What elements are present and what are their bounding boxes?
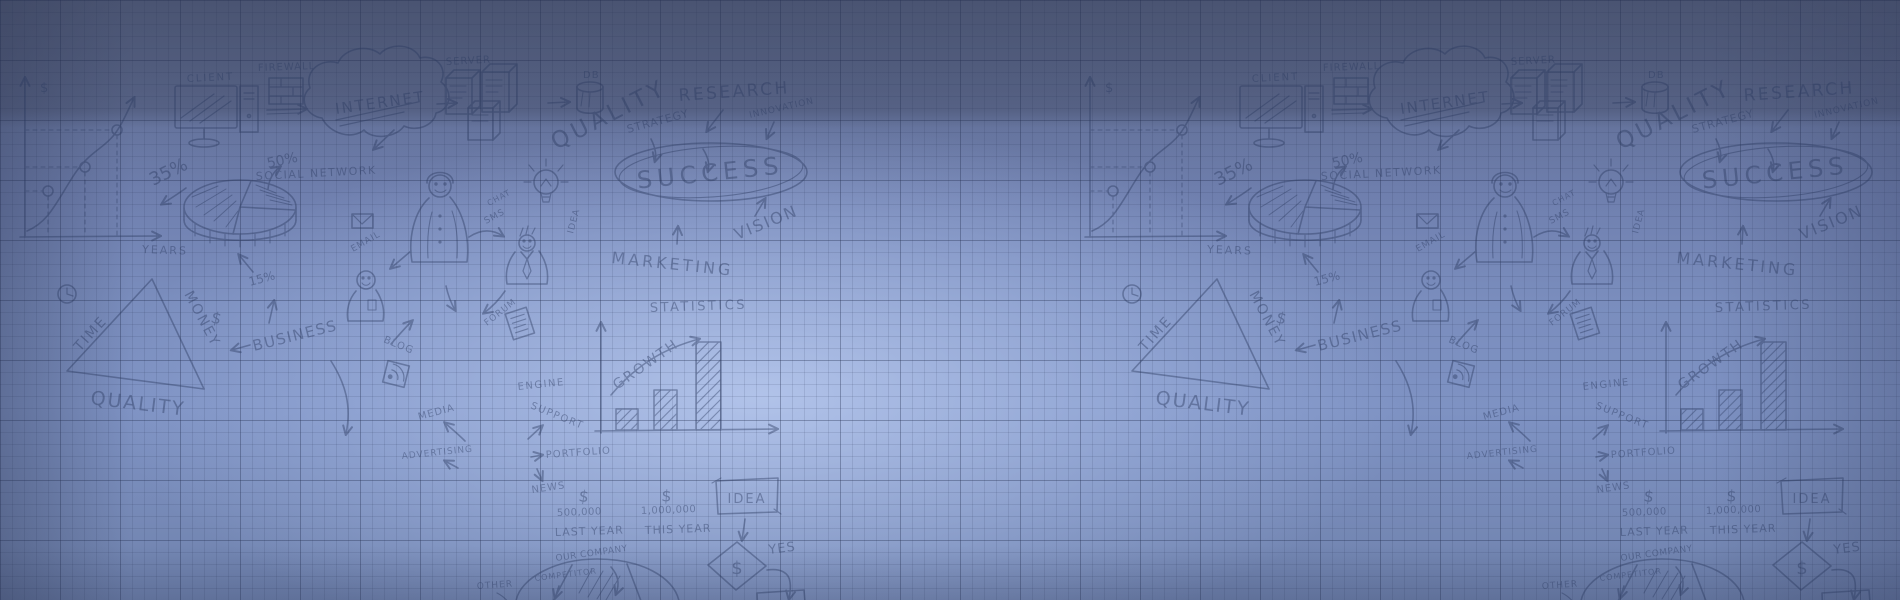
doodle-banner: { "banner": { "theme": { "ink": "#2b3a60… — [0, 0, 1900, 600]
doodle-tile-instance-left — [20, 46, 815, 600]
doodle-tile-instance-right — [1085, 46, 1880, 600]
doodle-art-layer: $ YEARS CLIENT — [0, 0, 1900, 600]
